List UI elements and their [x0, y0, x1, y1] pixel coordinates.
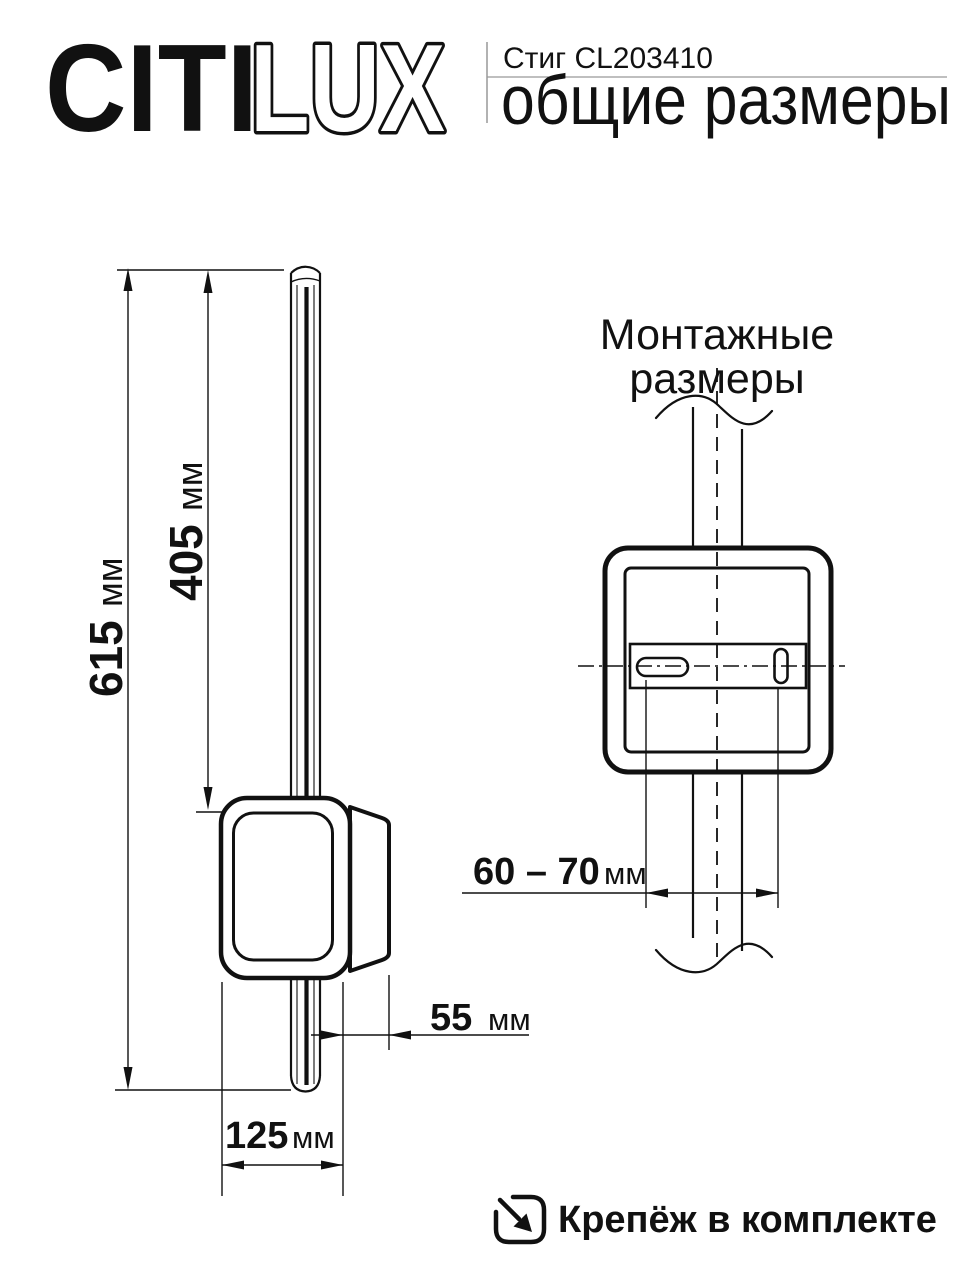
- dimension-rod-height: 405 мм: [160, 270, 213, 810]
- footer: Крепёж в комплекте: [496, 1197, 937, 1242]
- header: CITI LUX Стиг CL203410 общие размеры: [45, 20, 951, 158]
- dimension-value: 55: [430, 997, 472, 1039]
- arrowhead-up: [124, 268, 133, 291]
- technical-drawing-canvas: CITI LUX Стиг CL203410 общие размеры 615…: [0, 0, 959, 1280]
- product-dimension-sheet: CITI LUX Стиг CL203410 общие размеры 615…: [0, 0, 959, 1280]
- arrowhead-down: [124, 1067, 133, 1090]
- rod-break-wave-bottom: [656, 944, 772, 972]
- logo-citi-text: CITI: [45, 20, 258, 158]
- dimension-value: 405: [160, 524, 212, 601]
- mounting-title-line1: Монтажные: [600, 311, 834, 359]
- overall-view-drawing: 615 мм 405 мм: [80, 267, 531, 1196]
- mounting-slot-horizontal: [637, 658, 688, 676]
- dimension-width: 125 мм: [222, 982, 343, 1196]
- dimension-value: 125: [225, 1115, 288, 1157]
- arrowhead-down: [204, 787, 213, 810]
- dimension-unit: мм: [292, 1120, 335, 1155]
- arrowhead-left: [646, 889, 668, 898]
- arrow-shaft: [500, 1200, 519, 1219]
- arrowhead-right: [756, 889, 778, 898]
- arrowhead-left: [389, 1031, 411, 1040]
- arrowhead-right: [321, 1031, 343, 1040]
- rod-top-cap-inner: [291, 278, 320, 282]
- dimension-depth: 55 мм: [311, 975, 531, 1196]
- dimension-value: 615: [80, 620, 132, 697]
- dimension-unit: мм: [488, 1002, 531, 1037]
- hardware-included-icon: [496, 1197, 544, 1242]
- dimension-unit: мм: [604, 856, 647, 891]
- lamp-rod-upper: [291, 267, 320, 798]
- rod-top-cap: [291, 267, 320, 273]
- mounting-view-drawing: Монтажные размеры 60 – 70 мм: [462, 311, 845, 972]
- arrowhead-right: [321, 1161, 343, 1170]
- arrowhead-left: [222, 1161, 244, 1170]
- dimension-total-height: 615 мм: [80, 268, 133, 1090]
- base-back-plate: [350, 807, 389, 971]
- dimension-value: 60 – 70: [473, 851, 600, 893]
- dimension-unit: мм: [169, 462, 210, 512]
- dimension-unit: мм: [89, 558, 130, 608]
- arrowhead-up: [204, 270, 213, 293]
- hardware-included-note: Крепёж в комплекте: [558, 1199, 937, 1241]
- logo-lux-text: LUX: [250, 20, 445, 158]
- page-subtitle: общие размеры: [501, 61, 951, 139]
